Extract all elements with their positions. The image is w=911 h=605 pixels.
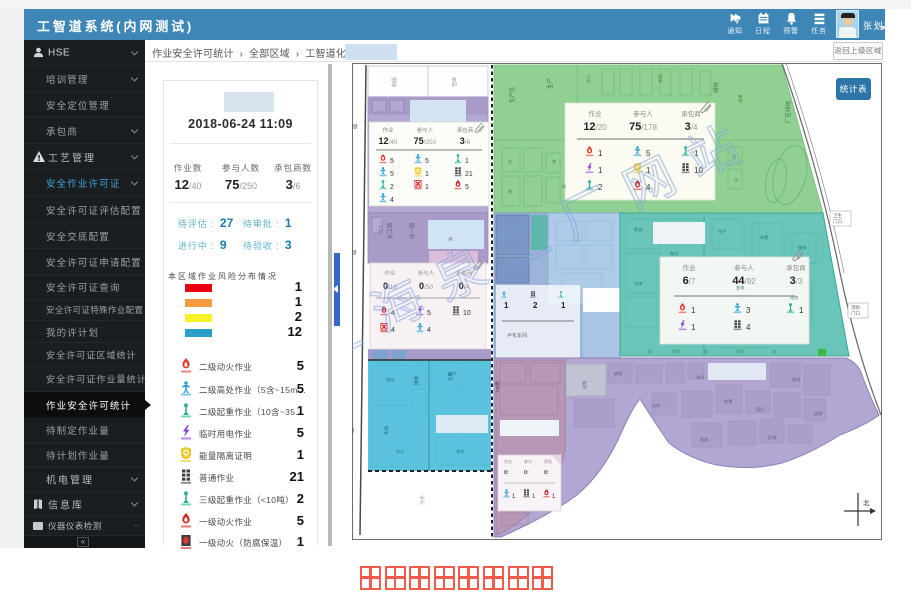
svg-text:仓库: 仓库 (634, 280, 642, 287)
svg-text:1: 1 (504, 301, 509, 310)
svg-text:厂区绿地: 厂区绿地 (784, 100, 792, 123)
svg-text:北: 北 (863, 499, 870, 507)
svg-text:1: 1 (465, 158, 469, 165)
svg-text:0:: 0: (524, 470, 529, 476)
svg-text:坊坊: 坊坊 (736, 348, 744, 355)
svg-text:变电: 变电 (736, 284, 745, 291)
svg-text:联合: 联合 (634, 226, 643, 233)
svg-text:2: 2 (533, 301, 538, 310)
svg-text:75/178: 75/178 (629, 121, 657, 133)
svg-text:参与: 参与 (524, 458, 532, 464)
svg-text:5: 5 (390, 171, 394, 178)
svg-text:作业: 作业 (683, 263, 697, 272)
svg-text:办公: 办公 (585, 74, 592, 83)
svg-text:1: 1 (561, 301, 566, 310)
svg-text:区域: 区域 (768, 434, 777, 440)
svg-text:5: 5 (465, 184, 469, 191)
svg-text:0:: 0: (504, 470, 509, 476)
svg-text:1: 1 (799, 306, 804, 315)
svg-text:泵房: 泵房 (456, 448, 464, 455)
svg-text:作业: 作业 (504, 458, 512, 464)
svg-text:绸线: 绸线 (614, 370, 623, 377)
svg-text:卫生: 卫生 (833, 212, 842, 218)
svg-text:1: 1 (691, 323, 696, 332)
svg-text:坊: 坊 (772, 348, 776, 355)
svg-text:维修: 维修 (413, 376, 420, 385)
svg-text:0:: 0: (544, 470, 549, 476)
svg-text:生产: 生产 (546, 77, 554, 89)
svg-text:卢化车间: 卢化车间 (507, 332, 527, 339)
svg-text:138路: 138路 (494, 380, 501, 393)
svg-text:2: 2 (390, 184, 394, 191)
svg-text:维修: 维修 (792, 376, 801, 383)
svg-text:21: 21 (465, 171, 473, 178)
svg-text:1: 1 (691, 306, 696, 315)
svg-text:承包商: 承包商 (786, 263, 806, 272)
svg-text:1: 1 (425, 171, 429, 178)
svg-text:3/3: 3/3 (790, 275, 803, 287)
svg-text:承包商: 承包商 (457, 126, 474, 134)
svg-text:门口: 门口 (851, 310, 860, 317)
svg-text:仓库: 仓库 (451, 77, 458, 87)
svg-text:5: 5 (425, 158, 429, 165)
svg-text:纮: 纮 (352, 249, 358, 255)
svg-text:1: 1 (598, 149, 603, 158)
svg-text:4: 4 (746, 323, 751, 332)
svg-text:化工: 化工 (377, 225, 384, 233)
svg-text:污水: 污水 (419, 495, 426, 505)
svg-text:1: 1 (598, 166, 603, 175)
svg-text:绿地: 绿地 (712, 81, 720, 93)
svg-text:仓库: 仓库 (448, 370, 456, 377)
svg-text:车间: 车间 (383, 426, 390, 435)
svg-text:门口: 门口 (833, 218, 842, 225)
svg-text:仓库: 仓库 (652, 402, 660, 409)
svg-text:坊: 坊 (704, 348, 708, 355)
svg-text:参与人: 参与人 (734, 263, 754, 272)
svg-text:5: 5 (390, 158, 394, 165)
svg-text:承包: 承包 (544, 458, 552, 464)
svg-text:4: 4 (427, 327, 431, 334)
svg-text:坊坊: 坊坊 (672, 348, 680, 355)
svg-text:塔区: 塔区 (756, 406, 764, 413)
svg-text:参与人: 参与人 (633, 109, 653, 118)
svg-text:车间: 车间 (670, 250, 678, 257)
svg-text:生产: 生产 (718, 228, 726, 235)
svg-text:车间: 车间 (696, 374, 704, 381)
svg-text:10: 10 (463, 310, 471, 317)
svg-text:车间: 车间 (396, 448, 404, 455)
svg-text:库: 库 (508, 188, 512, 195)
svg-text:参与人: 参与人 (417, 126, 434, 134)
svg-text:作业: 作业 (589, 109, 603, 118)
svg-text:生产区: 生产区 (508, 86, 516, 103)
svg-text:装置: 装置 (724, 398, 732, 405)
svg-text:标段: 标段 (391, 77, 398, 87)
svg-text:经一路: 经一路 (408, 222, 416, 239)
svg-text:4: 4 (390, 197, 394, 204)
svg-text:维修: 维修 (386, 376, 395, 383)
svg-text:装置: 装置 (760, 234, 768, 241)
svg-text:化工路: 化工路 (386, 222, 394, 239)
svg-text:消防: 消防 (851, 304, 860, 311)
svg-text:班组: 班组 (814, 410, 822, 417)
svg-text:坊: 坊 (648, 348, 652, 355)
svg-text:承包商: 承包商 (681, 109, 701, 118)
svg-text:位: 位 (734, 176, 738, 182)
svg-text:间: 间 (562, 183, 566, 190)
svg-text:纮: 纮 (352, 427, 356, 433)
svg-text:站房: 站房 (790, 294, 798, 301)
svg-text:绿地: 绿地 (737, 94, 743, 103)
svg-text:车间: 车间 (657, 75, 664, 83)
svg-text:12/20: 12/20 (583, 121, 607, 133)
svg-text:维修: 维修 (798, 244, 807, 251)
svg-text:1: 1 (425, 184, 429, 191)
svg-text:纮: 纮 (352, 123, 359, 129)
svg-text:泵房: 泵房 (700, 436, 708, 443)
svg-text:6/7: 6/7 (683, 275, 696, 287)
svg-text:车: 车 (552, 158, 556, 165)
svg-text:作业: 作业 (382, 126, 394, 134)
svg-text:道路: 道路 (581, 380, 588, 389)
svg-text:3: 3 (746, 306, 751, 315)
